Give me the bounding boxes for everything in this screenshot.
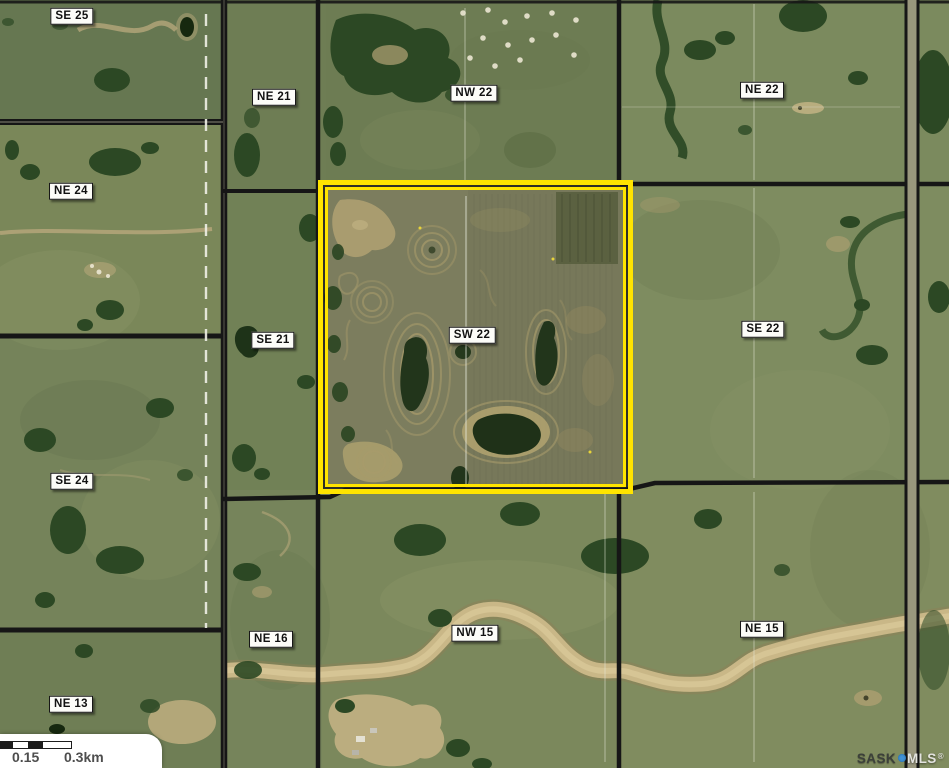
- watermark-mls-text: MLS: [907, 752, 937, 766]
- blue-dot-icon: [898, 754, 906, 762]
- mls-map-screenshot: SE 25NE 21NW 22NE 22NE 24SE 21SW 22SE 22…: [0, 0, 949, 768]
- scale-end-label: 0.3km: [64, 749, 104, 765]
- scale-bar: 0.15 0.3km: [0, 734, 162, 768]
- scale-segment: [1, 742, 13, 748]
- sask-mls-watermark: SASK MLS ®: [857, 752, 944, 766]
- watermark-sask-text: SASK: [857, 752, 896, 766]
- scale-bar-graphic: [0, 741, 72, 749]
- highlight-box: [318, 180, 633, 494]
- scale-segment: [13, 742, 28, 748]
- registered-trademark-icon: ®: [938, 753, 944, 761]
- scale-segment: [43, 742, 70, 748]
- scale-segment: [28, 742, 43, 748]
- highlight-inner-line: [325, 187, 626, 487]
- scale-mid-label: 0.15: [12, 749, 39, 765]
